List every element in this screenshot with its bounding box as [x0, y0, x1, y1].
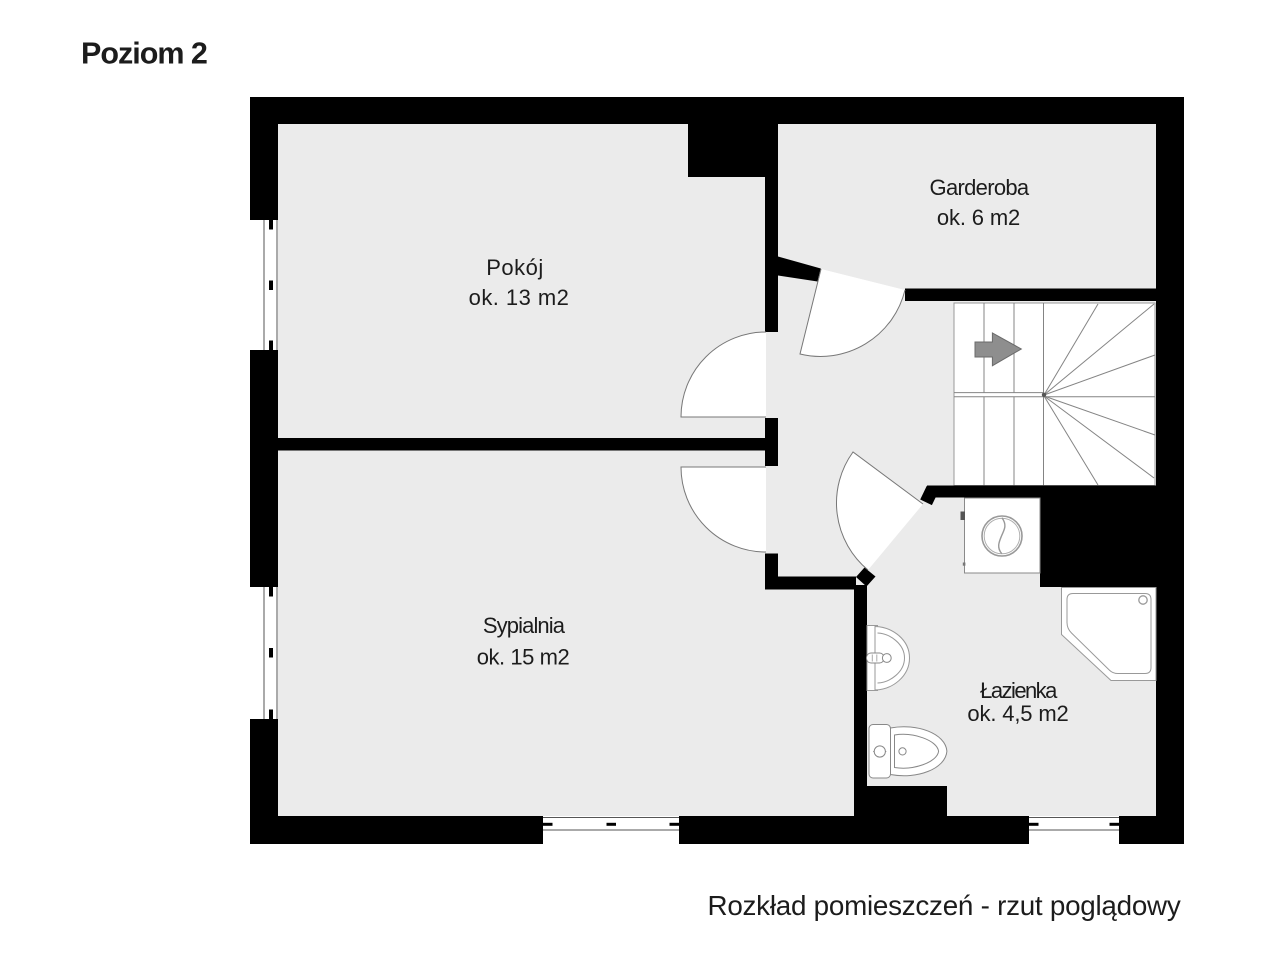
svg-text:Garderoba: Garderoba [930, 175, 1030, 200]
svg-text:ok. 6 m2: ok. 6 m2 [937, 205, 1020, 230]
svg-text:Łazienka: Łazienka [980, 678, 1058, 703]
svg-text:ok. 15 m2: ok. 15 m2 [477, 645, 570, 670]
svg-text:Rozkład pomieszczeń - rzut pog: Rozkład pomieszczeń - rzut poglądowy [708, 890, 1181, 921]
svg-text:ok. 13 m2: ok. 13 m2 [469, 285, 570, 310]
svg-text:ok. 4,5 m2: ok. 4,5 m2 [967, 701, 1068, 726]
svg-text:Pokój: Pokój [486, 255, 544, 280]
svg-text:Sypialnia: Sypialnia [483, 613, 566, 638]
svg-text:Poziom 2: Poziom 2 [81, 37, 207, 71]
